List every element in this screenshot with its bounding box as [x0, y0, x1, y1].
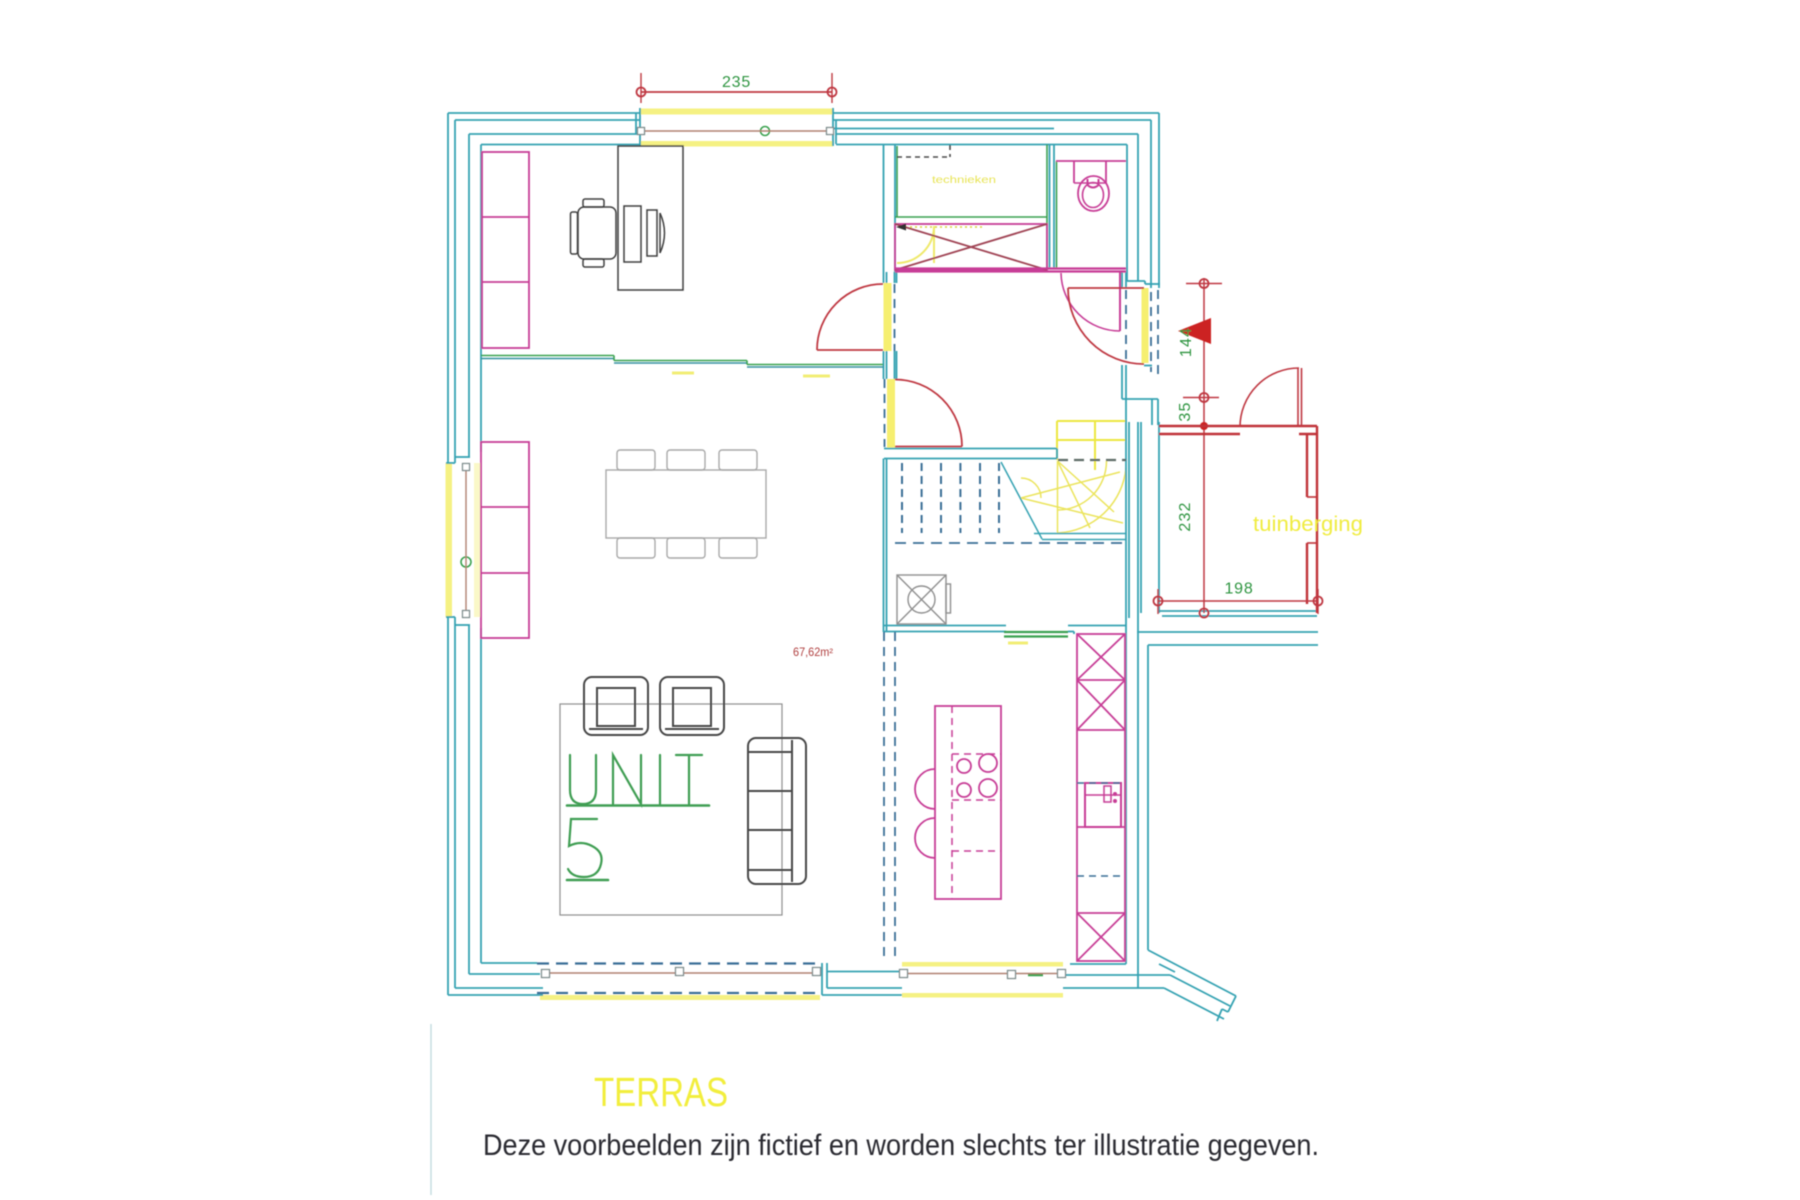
svg-text:235: 235	[722, 74, 751, 91]
svg-text:technieken: technieken	[932, 175, 996, 186]
svg-text:232: 232	[1177, 501, 1194, 531]
svg-text:TERRAS: TERRAS	[594, 1069, 728, 1115]
svg-text:tuinberging: tuinberging	[1253, 513, 1363, 536]
svg-text:35: 35	[1177, 401, 1194, 421]
svg-text:67,62m²: 67,62m²	[793, 647, 833, 659]
svg-text:144: 144	[1178, 327, 1195, 357]
svg-text:198: 198	[1224, 581, 1253, 598]
svg-text:Deze voorbeelden zijn fictief: Deze voorbeelden zijn fictief en worden …	[483, 1129, 1319, 1162]
